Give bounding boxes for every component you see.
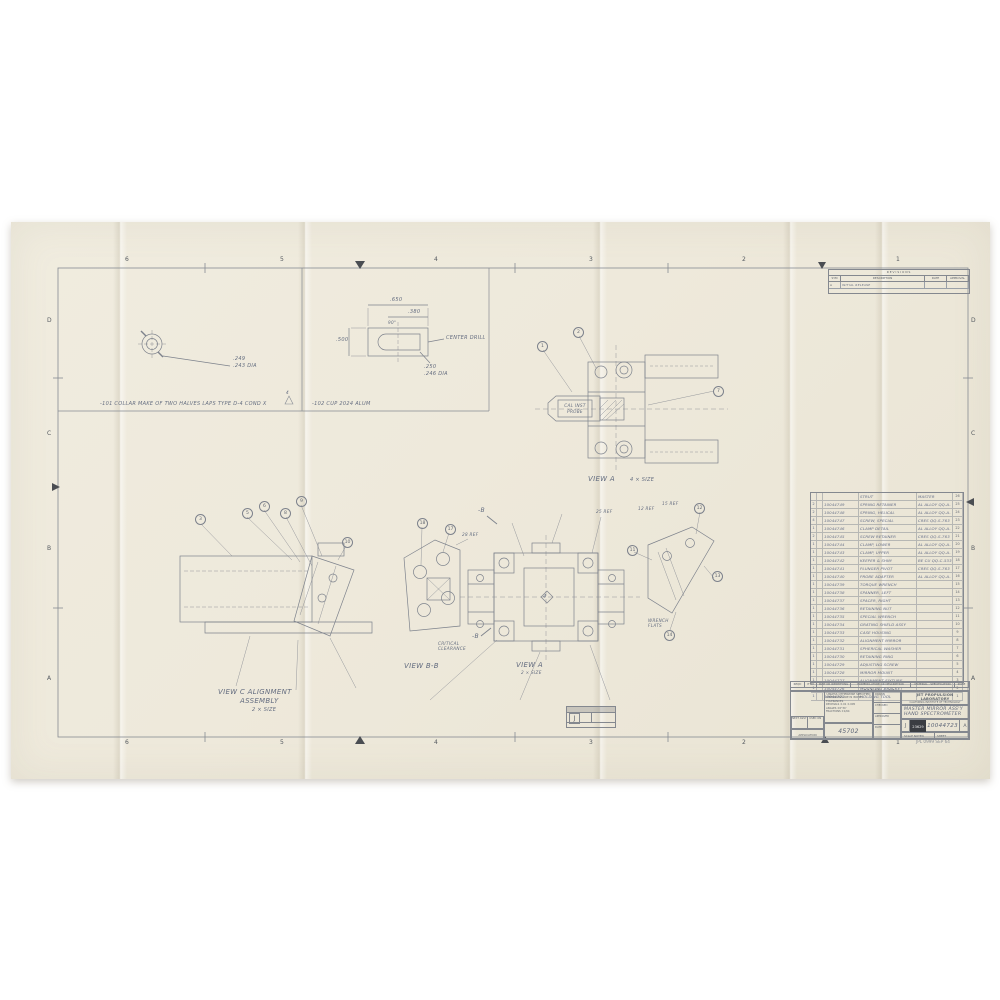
description-cell: SPANNER, LEFT — [859, 589, 917, 596]
revision-sym: A — [829, 282, 841, 288]
item-number-cell: 14 — [953, 589, 963, 596]
description-cell: CASE HOUSING — [859, 629, 917, 636]
balloon-callout: 3 — [195, 514, 206, 525]
part-number-cell: 10044730 — [823, 653, 859, 660]
part-number-cell: 10044746 — [823, 525, 859, 532]
material-cell: AL ALLOY QQ-A-225/6 — [917, 549, 953, 556]
item-number-cell: 4 — [953, 669, 963, 676]
part-number-cell: 10044740 — [823, 573, 859, 580]
description-cell: SCREW RETAINER — [859, 533, 917, 540]
view-a-top-label: VIEW A — [588, 475, 615, 483]
parts-list-row: 1 10044734 GRATING SHIELD ASSY 10 — [811, 621, 963, 629]
drawn-label: DRAWN — [874, 692, 900, 703]
zone-number: 1 — [896, 256, 900, 263]
view-bb-label: VIEW B-B — [404, 662, 439, 670]
balloon-callout: 1 — [537, 341, 548, 352]
parts-header-desc: NOMENCLATURE OR DESCRIPTION — [851, 682, 911, 687]
view-a-mid-label: VIEW A — [516, 661, 543, 669]
note-cup: -102 CUP 2024 ALUM — [312, 401, 371, 407]
description-cell: SPACER, RIGHT — [859, 597, 917, 604]
zone-number: 5 — [280, 739, 284, 746]
dim-cup-650: .650 — [390, 297, 402, 303]
checked-label: CHECKED — [874, 703, 900, 714]
dim-collar-dia-2: .243 DIA — [233, 363, 257, 369]
balloon-callout: 17 — [445, 524, 456, 535]
parts-list-row: 1 10044742 KEEPER & SHIM BE CU QQ-C-533 … — [811, 557, 963, 565]
part-number-cell: 10044738 — [823, 589, 859, 596]
view-c-label-1: VIEW C ALIGNMENT — [218, 688, 292, 696]
material-cell — [917, 621, 953, 628]
item-number-cell: 23 — [953, 517, 963, 524]
material-cell — [917, 613, 953, 620]
description-cell: ALIGNMENT MIRROR — [859, 637, 917, 644]
application-label: APPLICATION — [791, 729, 824, 739]
revisions-row: A INITIAL RELEASE — [829, 282, 969, 289]
ref-15-label: 15 REF — [662, 501, 678, 506]
balloon-callout: 14 — [664, 630, 675, 641]
dim-cup-dia-2: .246 DIA — [424, 371, 448, 377]
balloon-callout: 9 — [296, 496, 307, 507]
material-cell — [917, 637, 953, 644]
zone-letter: C — [971, 430, 975, 437]
item-number-cell: 15 — [953, 581, 963, 588]
item-number-cell: 9 — [953, 629, 963, 636]
part-number-cell: 10044733 — [823, 629, 859, 636]
view-a-mid-scale: 2 × SIZE — [521, 670, 542, 675]
item-number-cell: 13 — [953, 597, 963, 604]
item-number-cell: 24 — [953, 509, 963, 516]
item-number-cell: 7 — [953, 645, 963, 652]
item-number-cell: 19 — [953, 549, 963, 556]
parts-list-row: 4 10044747 SCREW, SPECIAL CRES QQ-S-763 … — [811, 517, 963, 525]
material-cell: BE CU QQ-C-533 — [917, 557, 953, 564]
item-number-cell: 20 — [953, 541, 963, 548]
section-b-arrow-bottom: -B — [472, 633, 479, 640]
part-number-cell: 10044729 — [823, 661, 859, 668]
parts-list-row: 2 10044745 SCREW RETAINER CRES QQ-S-763 … — [811, 533, 963, 541]
material-cell — [917, 597, 953, 604]
next-assy-label: NEXT ASSY — [792, 717, 808, 728]
parts-list-row: 1 10044728 MIRROR MOUNT 4 — [811, 669, 963, 677]
material-cell: AL ALLOY QQ-A-225/6 — [917, 509, 953, 516]
material-cell — [917, 653, 953, 660]
parts-list-row: STRUT MASTER MIRROR ASSY 26 — [811, 493, 963, 501]
zone-number: 4 — [434, 256, 438, 263]
zone-letter: B — [971, 545, 975, 552]
material-cell: CRES QQ-S-763 — [917, 517, 953, 524]
dim-cup-dia-1: .250 — [424, 364, 436, 370]
balloon-callout: 12 — [694, 503, 705, 514]
parts-list-table: STRUT MASTER MIRROR ASSY 26 2 10044749 S… — [810, 492, 964, 683]
parts-header-part: PART OR IDENTIFYING NO — [817, 682, 851, 687]
zone-number: 4 — [434, 739, 438, 746]
probe-label-2: PROBE — [560, 409, 590, 414]
item-number-cell: 25 — [953, 501, 963, 508]
balloon-callout: 11 — [627, 545, 638, 556]
zone-letter: A — [971, 675, 975, 682]
part-number-cell: 10044736 — [823, 605, 859, 612]
description-cell: CLAMP DETAIL — [859, 525, 917, 532]
dim-cup-angle: 90° — [388, 320, 396, 325]
title-block: NEXT ASSY USED ON APPLICATION UNLESS OTH… — [790, 690, 970, 740]
part-number-cell: 10044742 — [823, 557, 859, 564]
description-cell: KEEPER & SHIM — [859, 557, 917, 564]
description-cell: CLAMP, LOWER — [859, 541, 917, 548]
item-number-cell: 22 — [953, 525, 963, 532]
description-cell: GRATING SHIELD ASSY — [859, 621, 917, 628]
material-cell — [917, 669, 953, 676]
parts-list-row: 1 10044730 RETAINING RING 6 — [811, 653, 963, 661]
zone-number: 2 — [742, 256, 746, 263]
material-cell: AL ALLOY QQ-A-225/6 — [917, 525, 953, 532]
item-number-cell: 5 — [953, 661, 963, 668]
parts-list-row: 1 10044740 PROBE ADAPTER AL ALLOY QQ-A-2… — [811, 573, 963, 581]
revisions-col-date: DATE — [925, 276, 947, 281]
item-number-cell: 8 — [953, 637, 963, 644]
revision-desc: INITIAL RELEASE — [841, 282, 925, 288]
dim-center-drill: CENTER DRILL — [446, 335, 486, 341]
zone-number: 5 — [280, 256, 284, 263]
ref-25-label: 25 REF — [596, 509, 612, 514]
ref-12-label: 12 REF — [638, 506, 654, 511]
zone-number: 1 — [896, 739, 900, 746]
description-cell: SCREW, SPECIAL — [859, 517, 917, 524]
part-number-cell: 10044748 — [823, 509, 859, 516]
used-on-label: USED ON — [808, 717, 824, 728]
part-number-cell: 10044741 — [823, 565, 859, 572]
parts-list-row: 1 10044738 SPANNER, LEFT 14 — [811, 589, 963, 597]
description-cell: SPHERICAL WASHER — [859, 645, 917, 652]
description-cell: MIRROR MOUNT — [859, 669, 917, 676]
zone-letter: B — [47, 545, 51, 552]
material-cell: CRES QQ-S-763 — [917, 565, 953, 572]
zone-letter: D — [971, 317, 976, 324]
description-cell: SPECIAL WRENCH — [859, 613, 917, 620]
view-c-label-3: 2 × SIZE — [252, 707, 276, 713]
part-number-cell: 10044747 — [823, 517, 859, 524]
view-a-top-scale: 4 × SIZE — [630, 477, 654, 483]
part-number-cell: 10044737 — [823, 597, 859, 604]
balloon-callout: 13 — [712, 571, 723, 582]
parts-list-row: 1 10044735 SPECIAL WRENCH 11 — [811, 613, 963, 621]
description-cell: PLUNGER PIVOT — [859, 565, 917, 572]
description-cell: RETAINING NUT — [859, 605, 917, 612]
form-number-note: JPL 0999 SEP 64 — [916, 739, 950, 744]
balloon-callout: 6 — [259, 501, 270, 512]
item-number-cell: 17 — [953, 565, 963, 572]
parts-header-qty: REQD — [791, 682, 805, 687]
part-number-cell: 10044731 — [823, 645, 859, 652]
item-number-cell: 11 — [953, 613, 963, 620]
part-number-cell: 10044744 — [823, 541, 859, 548]
material-cell — [917, 661, 953, 668]
part-number-cell: 10044745 — [823, 533, 859, 540]
part-number-cell: 10044728 — [823, 669, 859, 676]
balloon-callout: 8 — [280, 508, 291, 519]
material-cell — [917, 645, 953, 652]
zone-number: 6 — [125, 256, 129, 263]
part-number-cell: 10044743 — [823, 549, 859, 556]
description-cell: PROBE ADAPTER — [859, 573, 917, 580]
parts-list-row: 2 10044748 SPRING, HELICAL AL ALLOY QQ-A… — [811, 509, 963, 517]
item-number-cell: 18 — [953, 557, 963, 564]
parts-list-row: 1 10044729 ADJUSTING SCREW 5 — [811, 661, 963, 669]
parts-list-row: 1 10044737 SPACER, RIGHT 13 — [811, 597, 963, 605]
zone-number: 3 — [589, 256, 593, 263]
description-cell: SPRING RETAINER — [859, 501, 917, 508]
item-number-cell: 21 — [953, 533, 963, 540]
ref-28-label: 28 REF — [462, 532, 478, 537]
zone-letter: D — [47, 317, 52, 324]
material-cell: CRES QQ-S-763 — [917, 533, 953, 540]
parts-list-row: 1 10044733 CASE HOUSING 9 — [811, 629, 963, 637]
item-number-cell: 10 — [953, 621, 963, 628]
parts-header-zone: ZONE — [955, 682, 969, 687]
material-cell — [917, 629, 953, 636]
diamond-item-number: 4 — [543, 594, 546, 600]
part-number-cell — [823, 493, 859, 500]
description-cell: CLAMP, UPPER — [859, 549, 917, 556]
dim-cup-500: .500 — [336, 337, 348, 343]
note-collar: -101 COLLAR MAKE OF TWO HALVES LAPS TYPE… — [100, 401, 267, 407]
balloon-callout: 7 — [713, 386, 724, 397]
balloon-callout: 10 — [342, 537, 353, 548]
parts-list-row: 1 10044731 SPHERICAL WASHER 7 — [811, 645, 963, 653]
material-cell — [917, 605, 953, 612]
tolerance-line-5: FRACTIONS ±1/64 — [826, 710, 871, 713]
zone-number: 3 — [589, 739, 593, 746]
section-b-arrow-top: -B — [478, 507, 485, 514]
revision-appr — [947, 282, 969, 288]
material-cell: AL ALLOY QQ-A-225/6 — [917, 541, 953, 548]
dim-cup-380: .380 — [408, 309, 420, 315]
org-name: JET PROPULSION LABORATORY — [902, 693, 968, 701]
description-cell: SPRING, HELICAL — [859, 509, 917, 516]
description-cell: RETAINING RING — [859, 653, 917, 660]
clearance-note-2: CLEARANCE — [438, 646, 466, 651]
parts-list-row: 1 10044736 RETAINING NUT 12 — [811, 605, 963, 613]
item-number-cell: 6 — [953, 653, 963, 660]
material-cell — [917, 581, 953, 588]
parts-header-matl: MATERIAL - SPECIFICATION — [911, 682, 955, 687]
parts-list-row: 2 10044749 SPRING RETAINER AL ALLOY QQ-A… — [811, 501, 963, 509]
description-cell: TORQUE WRENCH — [859, 581, 917, 588]
probe-label-1: CAL INST — [560, 403, 590, 408]
description-cell: ADJUSTING SCREW — [859, 661, 917, 668]
item-number-cell: 26 — [953, 493, 963, 500]
approved-label: APPROVED — [874, 714, 900, 725]
revisions-col-desc: DESCRIPTION — [841, 276, 925, 281]
wrench-flats-note-2: FLATS — [648, 623, 662, 628]
item-number-cell: 12 — [953, 605, 963, 612]
part-number-cell: 10044734 — [823, 621, 859, 628]
dim-collar-dia-1: .249 — [233, 356, 245, 362]
description-cell: STRUT — [859, 493, 917, 500]
revisions-col-sym: SYM — [829, 276, 841, 281]
note-flag-number: 4 — [286, 390, 289, 395]
balloon-callout: 18 — [417, 518, 428, 529]
revisions-block: REVISIONS SYM DESCRIPTION DATE APPROVAL … — [828, 269, 970, 294]
parts-list-row: 1 10044732 ALIGNMENT MIRROR 8 — [811, 637, 963, 645]
material-cell: AL ALLOY QQ-A-225/6 — [917, 573, 953, 580]
parts-list-row: 1 10044744 CLAMP, LOWER AL ALLOY QQ-A-22… — [811, 541, 963, 549]
revision-date — [925, 282, 947, 288]
drawing-title-2: HAND SPECTROMETER — [904, 712, 968, 717]
zone-letter: C — [47, 430, 51, 437]
view-c-label-2: ASSEMBLY — [240, 697, 279, 705]
material-cell — [917, 589, 953, 596]
microfilm-stamp: J — [566, 706, 616, 728]
balloon-callout: 2 — [573, 327, 584, 338]
part-number-cell: 10044735 — [823, 613, 859, 620]
part-number-cell: 10044749 — [823, 501, 859, 508]
zone-letter: A — [47, 675, 51, 682]
scanned-engineering-drawing: 6 5 4 3 2 1 6 5 4 3 2 1 D C B A D C B A … — [0, 0, 1000, 1000]
parts-list-row: 1 10044743 CLAMP, UPPER AL ALLOY QQ-A-22… — [811, 549, 963, 557]
revisions-col-appr: APPROVAL — [947, 276, 969, 281]
date-label: DATE — [874, 725, 900, 737]
item-number-cell: 16 — [953, 573, 963, 580]
material-cell: MASTER MIRROR ASSY — [917, 493, 953, 500]
part-number-cell: 10044739 — [823, 581, 859, 588]
parts-list-row: 1 10044746 CLAMP DETAIL AL ALLOY QQ-A-22… — [811, 525, 963, 533]
parts-list-row: 1 10044739 TORQUE WRENCH 15 — [811, 581, 963, 589]
part-number-cell: 10044732 — [823, 637, 859, 644]
parts-list-row: 1 10044741 PLUNGER PIVOT CRES QQ-S-763 1… — [811, 565, 963, 573]
balloon-callout: 5 — [242, 508, 253, 519]
zone-number: 2 — [742, 739, 746, 746]
material-cell: AL ALLOY QQ-A-225/6 — [917, 501, 953, 508]
next-assy-value: 45702 — [824, 723, 873, 739]
zone-number: 6 — [125, 739, 129, 746]
parts-header-item: ITEM — [805, 682, 817, 687]
